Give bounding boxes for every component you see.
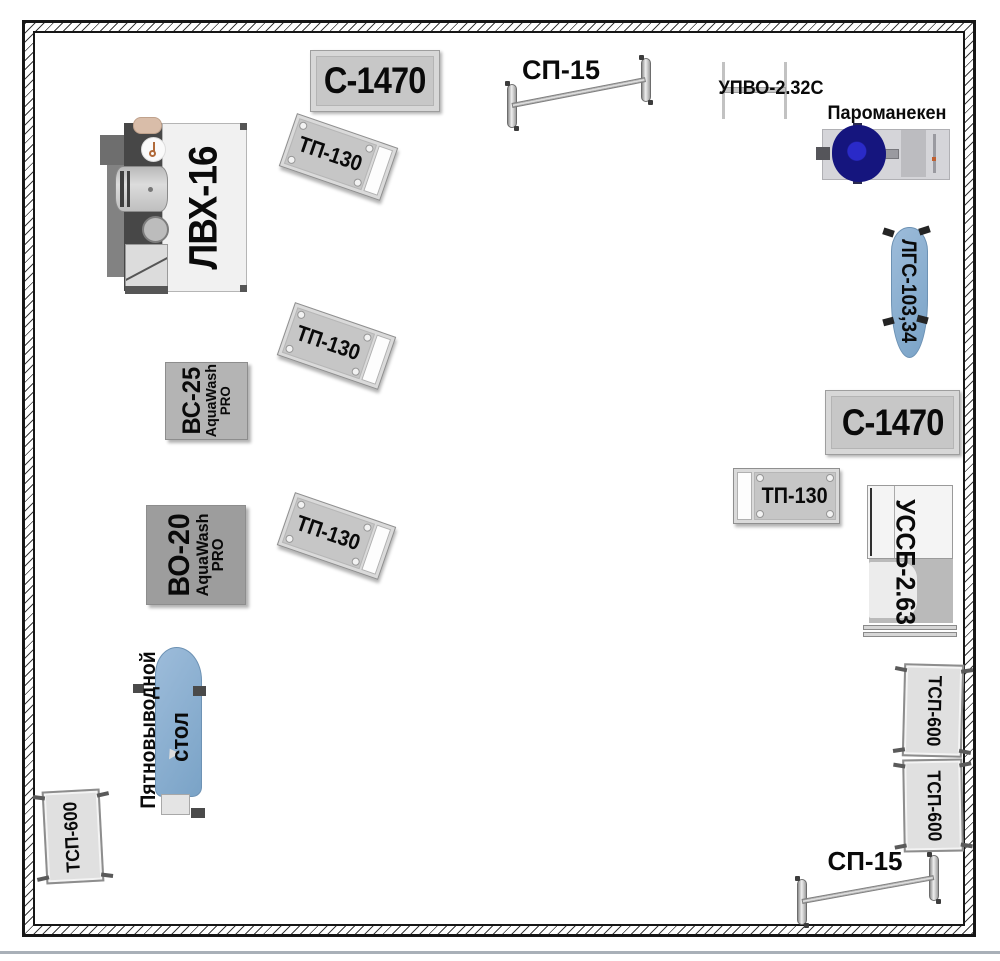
machine-vs25: ВС-25 AquaWash PRO (165, 362, 248, 440)
lvh16-gauge-icon (141, 137, 166, 162)
paromaneken-label: Пароманекен (823, 103, 950, 125)
lvh16-notch-top (240, 123, 247, 130)
lgs-label: ЛГС-103,34 (896, 239, 920, 343)
machine-lvh16: ЛВХ-16 (100, 120, 248, 295)
lvh16-drum-icon (115, 166, 168, 212)
mannequin-form-icon (832, 125, 886, 182)
sign-c1470-right-label: С-1470 (842, 402, 944, 444)
tp130-top-label: ТП-130 (295, 131, 366, 177)
tp130-lower-label: ТП-130 (293, 510, 364, 556)
vo20-model-label: ВО-20 (166, 513, 195, 596)
screw-icon (284, 534, 294, 544)
screw-icon (298, 121, 308, 131)
sp15-bottom-label: СП-15 (815, 846, 915, 877)
screw-icon (364, 144, 374, 154)
tp130-middle-label: ТП-130 (293, 320, 364, 366)
mannequin-rod (933, 134, 936, 173)
tsp600-right-1-label: ТСП-600 (921, 675, 945, 746)
spotting-table-label-line1: Пятновыводной (137, 651, 161, 808)
vo20-series-label: PRO (211, 513, 226, 596)
screw-icon (353, 178, 363, 188)
sign-c1470-top: С-1470 (310, 50, 440, 112)
screw-icon (826, 474, 834, 482)
vs25-model-label: ВС-25 (181, 364, 205, 437)
screw-icon (351, 367, 361, 377)
tp130-right-label: ТП-130 (762, 483, 828, 509)
lvh16-label: ЛВХ-16 (182, 146, 227, 269)
screw-icon (362, 523, 372, 533)
machine-vo20: ВО-20 AquaWash PRO (146, 505, 246, 605)
table-tsp600-left: ТСП-600 (42, 789, 105, 885)
lvh16-port-circle-icon (142, 216, 169, 243)
screw-icon (286, 155, 296, 165)
mannequin-right-stub (885, 149, 899, 159)
sign-c1470-top-label: С-1470 (324, 60, 426, 102)
screw-icon (362, 333, 372, 343)
table-tsp600-right-1: ТСП-600 (902, 663, 964, 758)
mannequin-left-stub (816, 147, 830, 160)
screw-icon (284, 344, 294, 354)
screw-icon (756, 474, 764, 482)
tp130-tray (737, 472, 752, 520)
ussb-tray (863, 632, 957, 637)
spotting-table-foot (193, 686, 206, 696)
mannequin-back-panel (901, 130, 926, 177)
lvh16-notch-bottom (240, 285, 247, 292)
lvh16-base-strip (125, 286, 168, 294)
ussb-label: УССБ-2.63 (890, 499, 921, 625)
sign-c1470-right: С-1470 (825, 390, 960, 455)
lvh16-top-element (133, 117, 162, 134)
vs25-series-label: PRO (219, 364, 232, 437)
tsp600-left-label: ТСП-600 (60, 801, 86, 873)
sp15-top-label: СП-15 (505, 55, 617, 86)
spotting-table-label-line2: стол (167, 712, 195, 762)
screw-icon (756, 510, 764, 518)
screw-icon (296, 310, 306, 320)
lvh16-side-block (100, 135, 126, 165)
laundry-floor-plan: ЛВХ-16 С-1470 ТП-130 ТП-130 ТП-130 С (0, 0, 1000, 961)
table-tsp600-right-2: ТСП-600 (902, 758, 964, 852)
screw-icon (826, 510, 834, 518)
upvo-label: УПВО-2.32С (705, 78, 836, 100)
machine-ussb: УССБ-2.63 (865, 485, 955, 638)
spotting-table-base (161, 794, 190, 815)
screw-icon (351, 557, 361, 567)
mannequin-orange-dot (932, 157, 936, 161)
steam-mannequin (822, 129, 950, 180)
page-bottom-rule (0, 951, 1000, 954)
spotting-table-foot (191, 808, 205, 818)
tsp600-right-2-label: ТСП-600 (921, 770, 944, 841)
ussb-tray (863, 625, 957, 630)
vo20-brand-label: AquaWash (195, 513, 211, 596)
screw-icon (296, 500, 306, 510)
lvh16-lower-panel (125, 244, 168, 288)
press-tp130-right: ТП-130 (733, 468, 840, 524)
